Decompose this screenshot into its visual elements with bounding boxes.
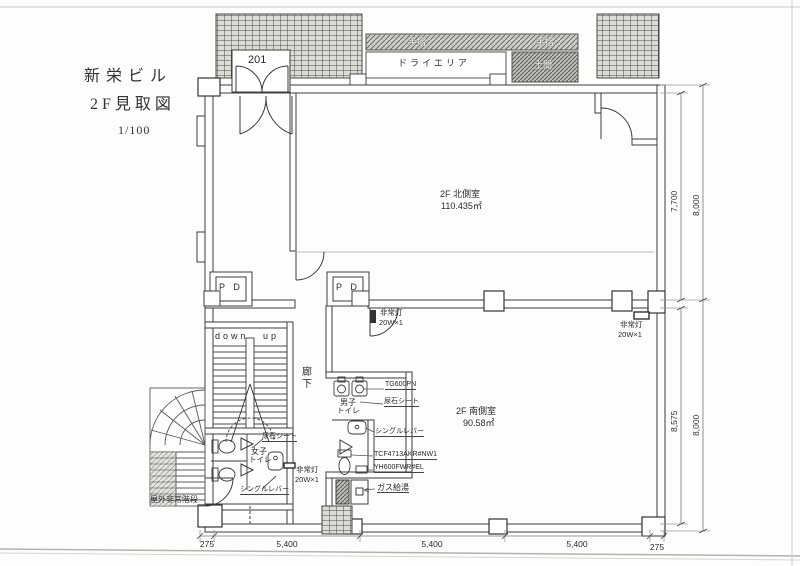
corridor-label: 廊下 [299, 366, 311, 390]
dim-bottom-1: 5,400 [262, 540, 312, 550]
paper-holder-label: YH600FWR#EL [374, 464, 424, 473]
dim-right-bottom-inner: 8,575 [670, 411, 680, 432]
single-lever-label-mens: シングルレバー [375, 428, 424, 437]
north-room-name: 2F 北側室 [440, 189, 480, 199]
stairs-down-label: down [215, 331, 249, 341]
dim-right-bottom-outer: 8,000 [692, 415, 702, 436]
mens-toilet [332, 377, 368, 475]
gas-heater-label: ガス給湯 [377, 483, 409, 493]
main-stairs [213, 338, 287, 442]
emergency-light-symbols [284, 310, 649, 468]
single-lever-label-womens: シングルレバー [240, 486, 289, 495]
railing-label-left: 手摺 [408, 37, 426, 47]
south-room-name: 2F 南側室 [456, 406, 496, 416]
outdoor-stairs-label: 屋外非常階段 [150, 495, 198, 504]
railing-label-right: 手摺 [536, 37, 554, 47]
dim-bottom-2: 5,400 [407, 540, 457, 550]
urinal-sheet-label-womens: 尿石シート [262, 433, 297, 442]
drawing-scale: 1/100 [118, 124, 150, 138]
emergency-light-spec-corridor: 20W×1 [379, 319, 403, 328]
womens-toilet [211, 434, 283, 490]
stairs-up-label: up [263, 331, 279, 341]
emergency-light-icon [370, 310, 376, 323]
emergency-light-spec-east: 20W×1 [618, 331, 642, 340]
emergency-light-label-womens: 非常灯 [296, 466, 319, 475]
emergency-light-label-corridor: 非常灯 [380, 309, 403, 318]
urinal-sheet-label: 尿石シート [384, 398, 419, 407]
room-201-number: 201 [248, 54, 266, 67]
drawing-subtitle: 2F見取図 [90, 96, 175, 114]
drawing-title: 新栄ビル [84, 68, 172, 86]
emergency-light-spec-womens: 20W×1 [295, 476, 319, 485]
pipe-duct-label-right: P D [336, 282, 360, 292]
mens-toilet-label-2: トイレ [337, 407, 360, 416]
washlet-model-label: TCF4713AKR#NW1 [374, 451, 437, 460]
building-walls [197, 85, 665, 532]
emergency-stairs [150, 388, 205, 506]
dim-right-top-outer: 8,000 [692, 195, 702, 216]
pipe-duct-label-left: P D [219, 282, 243, 292]
emergency-light-icon [284, 463, 295, 468]
south-room-area: 90.58㎡ [463, 418, 495, 428]
dim-right-top-inner: 7,700 [670, 191, 680, 212]
womens-toilet-label-2: トイレ [249, 456, 272, 465]
emergency-light-icon [634, 312, 649, 319]
scanned-floor-plan-page: 新栄ビル 2F見取図 1/100 201 ドライエリア 手摺 手摺 土間 2F … [0, 0, 800, 566]
emergency-light-label-east: 非常灯 [620, 321, 643, 330]
dry-area-label: ドライエリア [398, 58, 470, 68]
urinal-model-label: TG600PN [385, 381, 416, 390]
dim-bottom-0: 275 [192, 540, 222, 550]
dim-bottom-3: 5,400 [552, 540, 602, 550]
dim-bottom-4: 275 [642, 543, 672, 553]
dimension-lines [197, 83, 710, 542]
doma-label: 土間 [534, 60, 552, 70]
north-room-area: 110.435㎡ [441, 201, 482, 211]
